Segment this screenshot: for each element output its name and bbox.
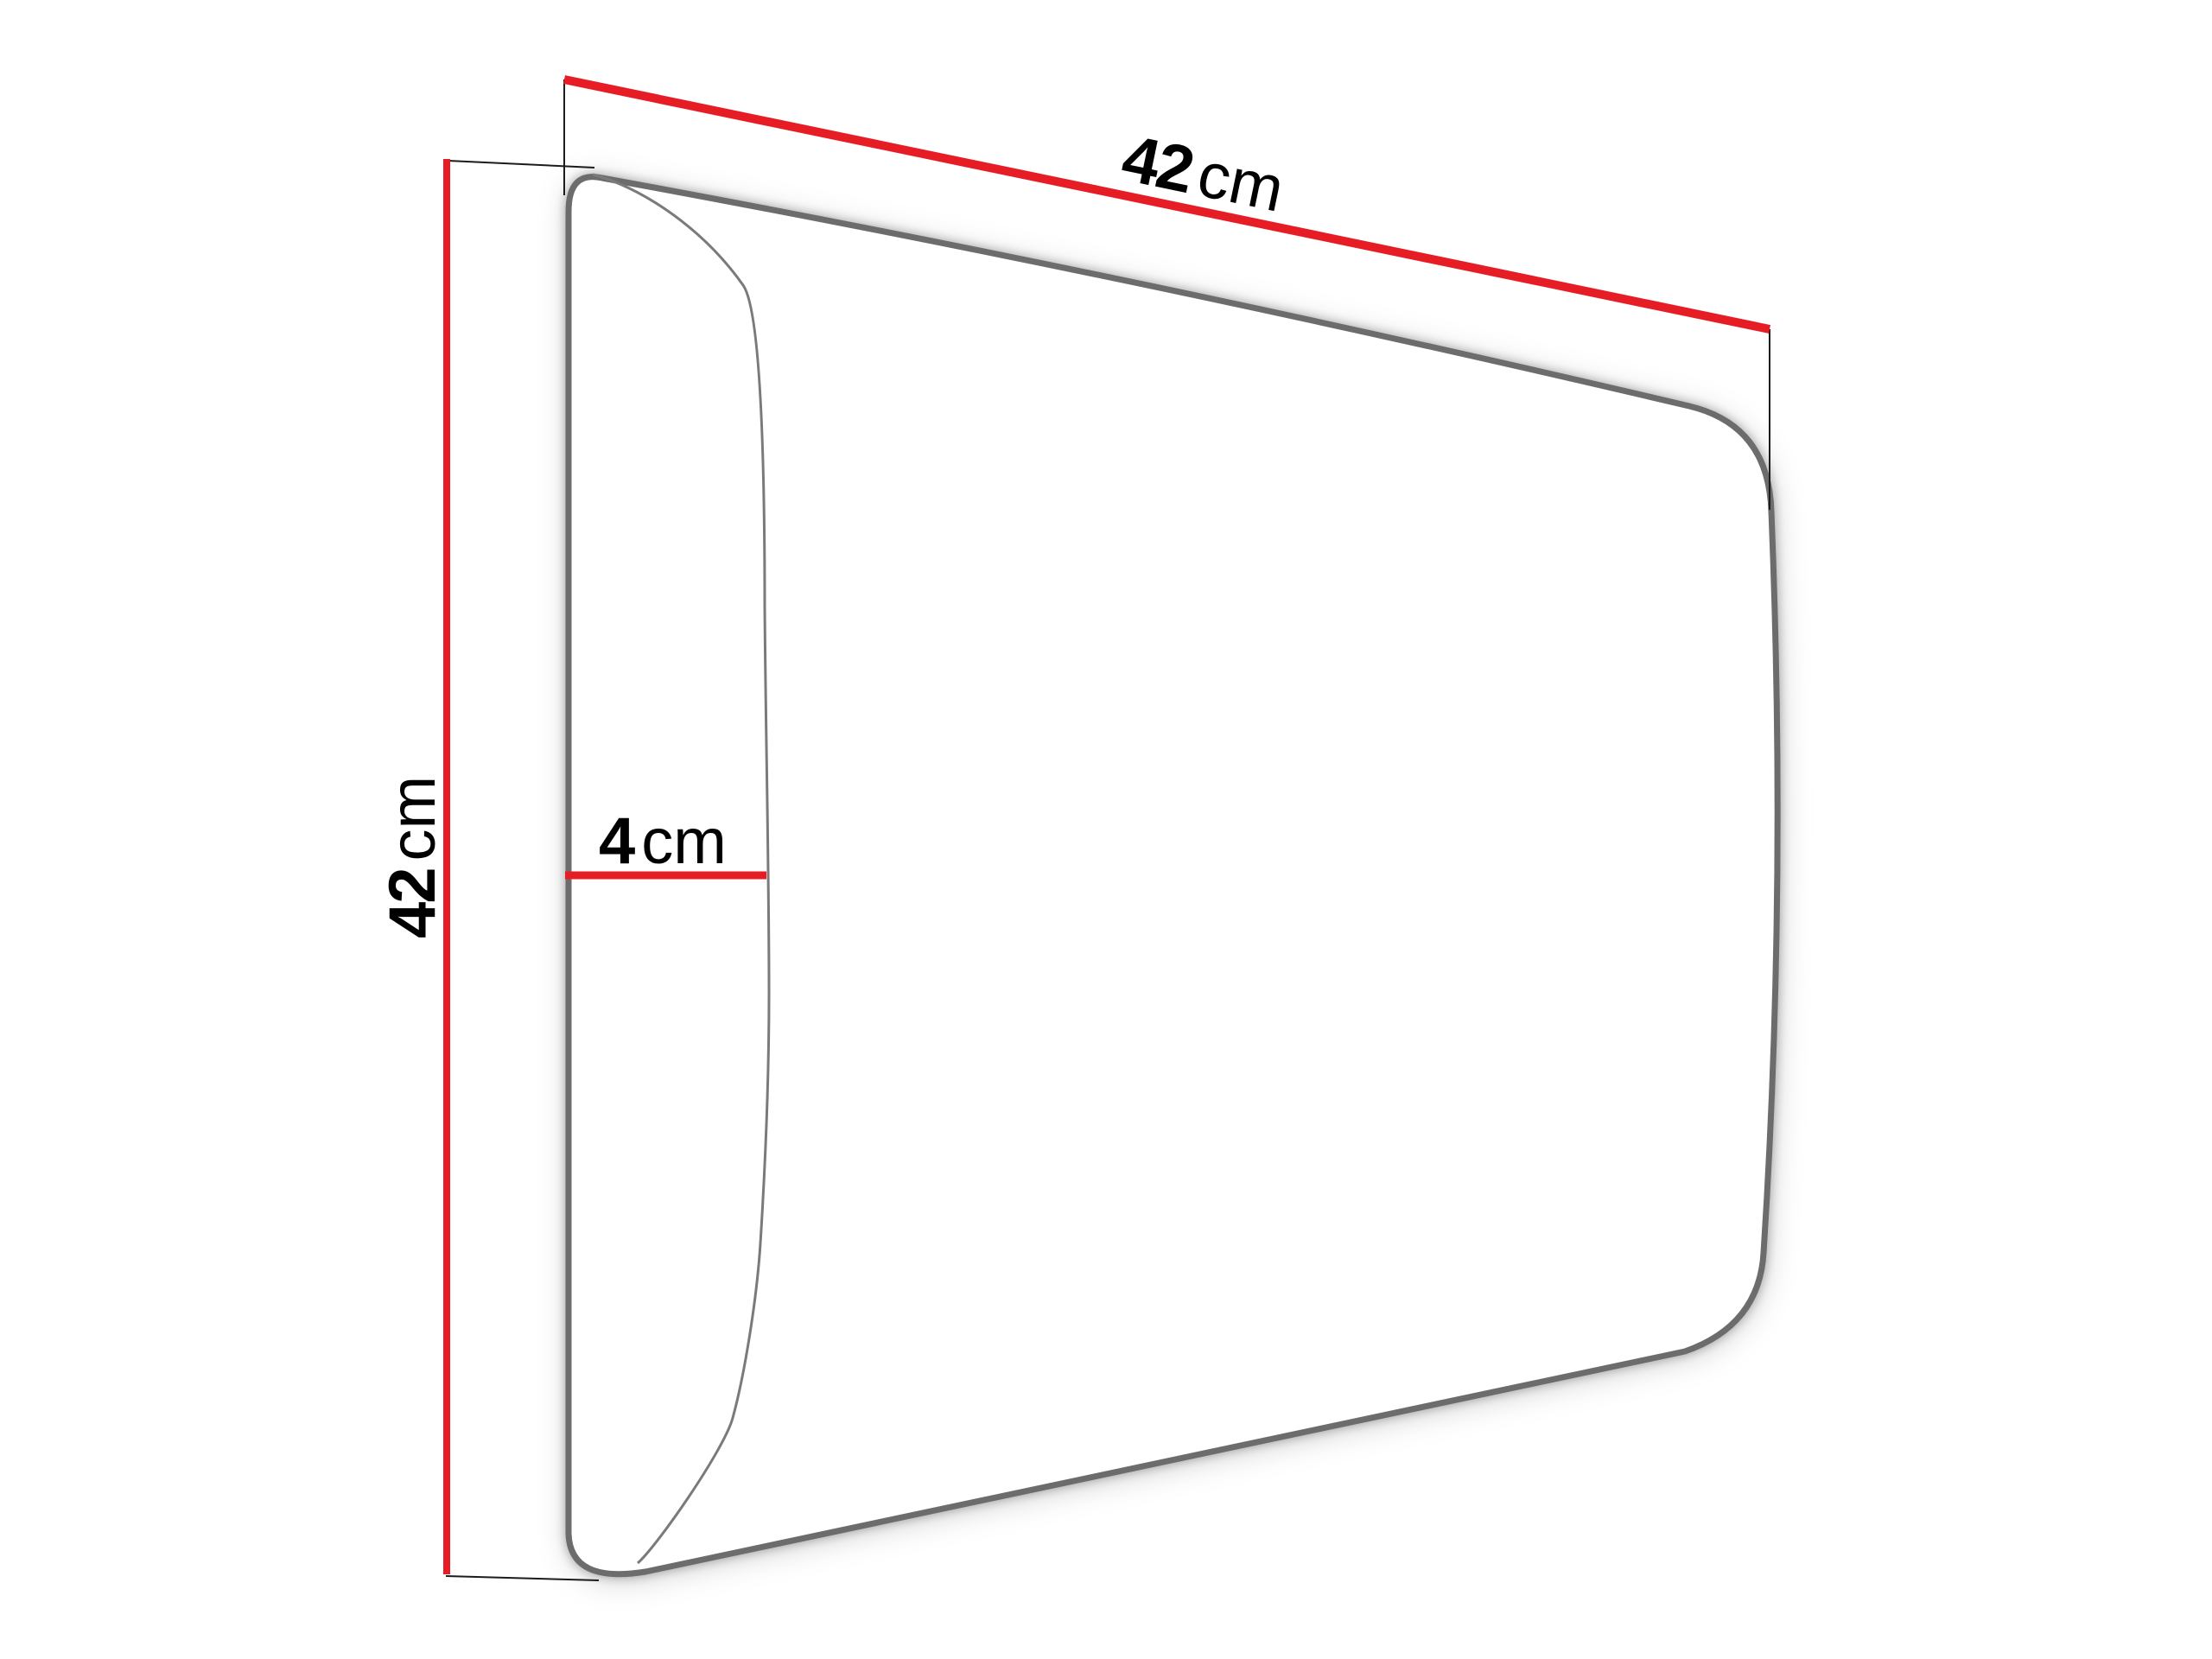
svg-text:42cm: 42cm: [376, 776, 449, 938]
svg-text:4cm: 4cm: [599, 804, 727, 878]
